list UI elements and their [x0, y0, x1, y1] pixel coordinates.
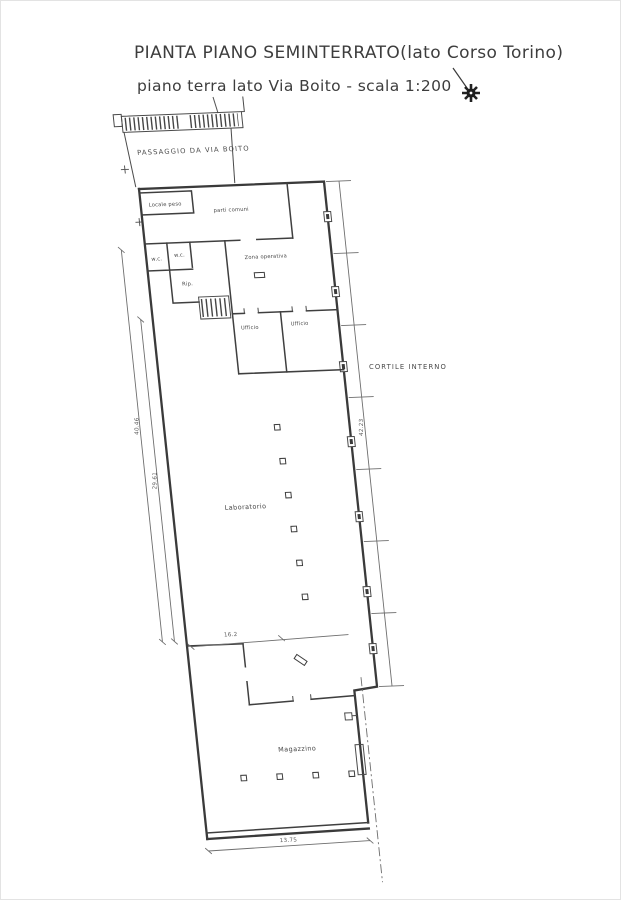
dim-left-inner: 29.61 [152, 472, 158, 490]
dim-middle: 16.2 [224, 632, 238, 639]
drawing-title-line2: piano terra lato Via Boito - scala 1:200 [137, 77, 452, 95]
room-label-rip: Rip. [182, 281, 194, 287]
drawing-title-line1: PIANTA PIANO SEMINTERRATO(lato Corso Tor… [134, 43, 563, 63]
room-label-zona-operativa: Zona operativa [244, 253, 287, 261]
building-outline [139, 182, 392, 839]
room-label-wc1: w.c. [151, 256, 162, 262]
interior-walls-offices [232, 305, 344, 374]
room-label-parti-comuni: parti comuni [213, 207, 249, 214]
column-marks [188, 271, 355, 781]
floor-plan-page: PIANTA PIANO SEMINTERRATO(lato Corso Tor… [0, 0, 621, 900]
title-leader-line [213, 97, 218, 113]
room-label-ufficio-2: Ufficio [290, 321, 308, 328]
floor-plan-canvas: PIANTA PIANO SEMINTERRATO(lato Corso Tor… [1, 1, 621, 900]
dim-right-side: 42.23 [359, 418, 365, 436]
room-label-locale-peso: Locale peso [148, 201, 181, 208]
room-label-ufficio-1: Ufficio [241, 325, 259, 332]
passage-connector-line [124, 132, 136, 187]
dim-left-outer: 40.46 [135, 417, 141, 435]
courtyard-label: CORTILE INTERNO [369, 363, 447, 371]
interior-walls-lower [187, 639, 366, 781]
stair-hatch-left [125, 122, 180, 124]
room-label-wc2: w.c. [174, 252, 185, 258]
north-compass-icon [453, 68, 480, 102]
dimension-lines [112, 181, 425, 891]
stair-hatch-right [190, 120, 238, 122]
room-label-magazzino: Magazzino [278, 744, 317, 753]
internal-stair [199, 296, 231, 319]
dim-bottom: 13.75 [279, 837, 297, 844]
room-label-laboratorio: Laboratorio [224, 502, 267, 512]
